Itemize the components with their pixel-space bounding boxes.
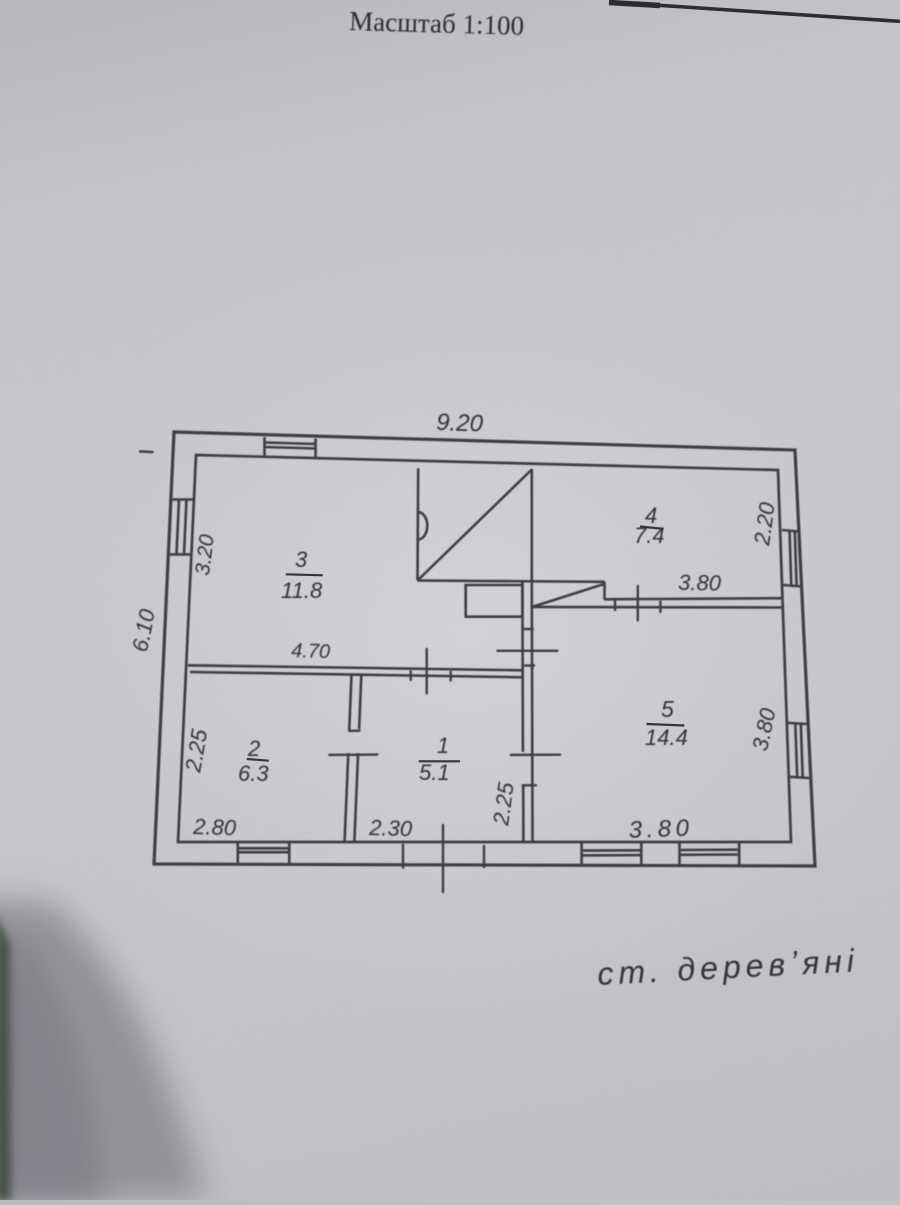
svg-text:4.70: 4.70 [291, 640, 331, 663]
svg-text:5.1: 5.1 [419, 760, 450, 785]
svg-text:9.20: 9.20 [436, 409, 484, 438]
svg-text:7.4: 7.4 [634, 523, 665, 548]
svg-text:3.80: 3.80 [678, 570, 722, 596]
svg-text:3: 3 [295, 547, 308, 572]
svg-text:14.4: 14.4 [645, 725, 688, 750]
svg-text:2: 2 [247, 736, 260, 761]
svg-text:1: 1 [437, 733, 449, 758]
svg-text:2.80: 2.80 [192, 814, 237, 841]
svg-text:3.80: 3.80 [628, 815, 694, 844]
svg-text:Масштаб 1:100: Масштаб 1:100 [349, 6, 525, 41]
svg-text:5: 5 [661, 696, 674, 722]
svg-text:6.3: 6.3 [238, 761, 269, 786]
svg-text:11.8: 11.8 [281, 578, 323, 603]
svg-text:2.30: 2.30 [368, 815, 413, 842]
